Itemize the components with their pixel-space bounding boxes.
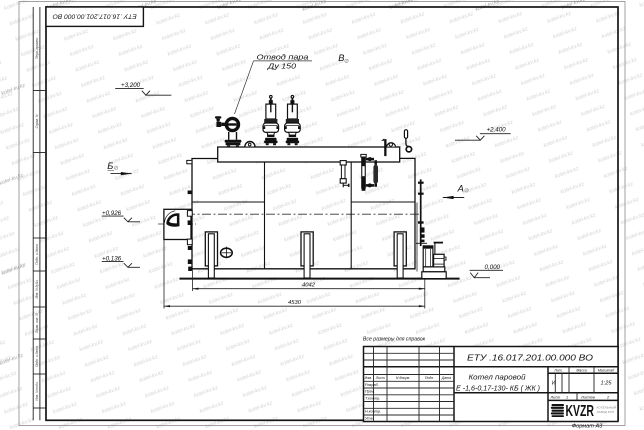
svg-text:Подп.: Подп. <box>425 376 434 380</box>
svg-text:Н.контр.: Н.контр. <box>365 410 381 414</box>
svg-text:ЕТУ .16.017.201.00.000 ВО: ЕТУ .16.017.201.00.000 ВО <box>52 12 137 19</box>
svg-text:1: 1 <box>566 396 568 400</box>
svg-text:4042: 4042 <box>302 282 316 288</box>
svg-text:Разраб.: Разраб. <box>365 383 379 387</box>
svg-text:И: И <box>552 381 556 387</box>
svg-text:Изм.: Изм. <box>365 376 372 380</box>
svg-text:4530: 4530 <box>288 300 302 306</box>
svg-text:+3,200: +3,200 <box>121 82 141 89</box>
svg-text:+0,136: +0,136 <box>102 255 122 262</box>
svg-text:+2,400: +2,400 <box>487 127 507 134</box>
svg-text:Отвод пара: Отвод пара <box>257 52 309 61</box>
svg-text:Котел паровой: Котел паровой <box>469 373 526 381</box>
svg-text:Формат А3: Формат А3 <box>572 423 603 429</box>
svg-text:Лист: Лист <box>375 376 385 380</box>
svg-text:ЕТУ .16.017.201.00.000 ВО: ЕТУ .16.017.201.00.000 ВО <box>467 352 594 362</box>
svg-text:Взам. инв. N: Взам. инв. N <box>35 313 39 333</box>
svg-text:В: В <box>338 53 344 63</box>
svg-text:Пров.: Пров. <box>365 390 375 394</box>
svg-text:Утв.: Утв. <box>365 416 374 420</box>
svg-text:Все размеры для справок: Все размеры для справок <box>363 336 426 342</box>
svg-text:+0,926: +0,926 <box>102 210 122 217</box>
svg-text:А: А <box>457 183 464 193</box>
svg-text:Ду 150: Ду 150 <box>267 61 297 70</box>
svg-text:КОТЕЛЬНЫЙ: КОТЕЛЬНЫЙ <box>597 406 617 410</box>
svg-text:Подп. и дата: Подп. и дата <box>35 346 39 367</box>
svg-text:Справ. N: Справ. N <box>35 114 39 128</box>
svg-text:ЗАВОД РЗП: ЗАВОД РЗП <box>597 410 615 414</box>
svg-text:Инв. N дубл.: Инв. N дубл. <box>35 279 39 298</box>
svg-text:Инв. N подл.: Инв. N подл. <box>35 381 39 400</box>
svg-text:Дата: Дата <box>441 376 451 380</box>
svg-text:Б: Б <box>107 161 113 171</box>
svg-text:Масштаб: Масштаб <box>598 369 615 373</box>
svg-text:1:25: 1:25 <box>601 381 613 387</box>
svg-text:KVZR: KVZR <box>566 403 595 420</box>
svg-text:Лит.: Лит. <box>553 369 562 373</box>
svg-text:Перв. примен.: Перв. примен. <box>35 37 39 59</box>
svg-text:Т.контр.: Т.контр. <box>365 396 380 400</box>
svg-text:N докум.: N докум. <box>396 376 410 380</box>
svg-text:Листов: Листов <box>580 396 595 400</box>
svg-text:Масса: Масса <box>576 369 586 373</box>
svg-text:Лист: Лист <box>550 396 561 400</box>
svg-text:Подп. и дата: Подп. и дата <box>35 244 39 265</box>
svg-text:Е -1,6-0,17-130- КБ ( ЖК ): Е -1,6-0,17-130- КБ ( ЖК ) <box>456 385 540 392</box>
